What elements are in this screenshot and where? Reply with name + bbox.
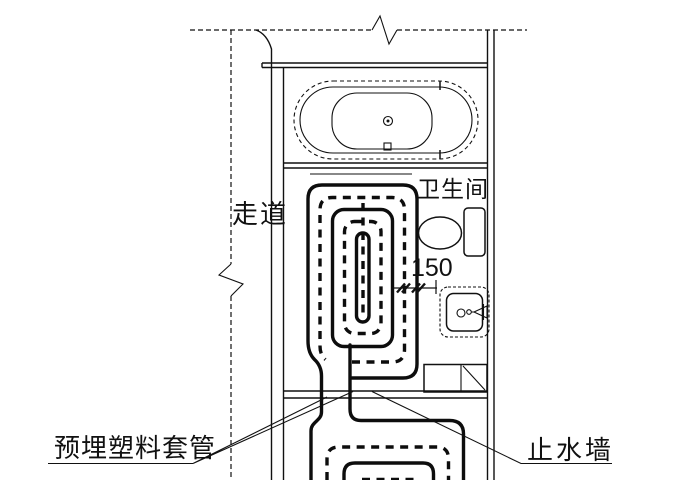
- sleeve-label: 预埋塑料套管: [54, 433, 216, 463]
- top-cut-line: [190, 16, 527, 44]
- dimension-150: 150: [392, 254, 453, 294]
- toilet: [419, 208, 486, 256]
- lower-room-coil: [327, 447, 449, 480]
- toilet-bowl: [419, 217, 462, 249]
- dimension-150-text: 150: [411, 254, 453, 282]
- walls: [256, 30, 494, 480]
- bathtub-basin: [332, 93, 432, 149]
- corridor-line: [219, 30, 243, 480]
- bathroom-label: 卫生间: [417, 176, 489, 202]
- cabinet-outline: [424, 365, 487, 393]
- faucet-handle: [467, 310, 472, 315]
- bathroom-left-wall: [272, 63, 284, 480]
- cabinet: [424, 365, 487, 393]
- bathtub: [294, 81, 478, 159]
- floor-heating-plan: 卫生间 150 走道: [0, 0, 700, 480]
- sleeve-callout: 预埋塑料套管: [48, 392, 353, 464]
- tub-alcove-wall: [284, 163, 488, 168]
- toilet-tank: [464, 208, 485, 256]
- lower-coil-solid-ring: [344, 463, 434, 480]
- bathroom-right-wall: [488, 30, 495, 480]
- water-stop-wall-callout: 止水墙: [372, 392, 614, 466]
- faucet-icon: [471, 304, 487, 320]
- bathtub-drain-dot: [387, 120, 390, 123]
- water-stop-wall-label: 止水墙: [527, 435, 614, 465]
- washbasin-drain: [457, 309, 465, 317]
- corridor-label: 走道: [232, 199, 288, 229]
- break-mark-top: [372, 16, 397, 44]
- break-mark-corridor: [219, 264, 243, 296]
- cabinet-divider: [461, 365, 485, 393]
- sleeve-leader-lines: [193, 392, 353, 464]
- bathroom-top-wall: [262, 63, 488, 68]
- washbasin: [440, 287, 489, 337]
- floor-heating-coil: [308, 185, 464, 480]
- wall-curve-corner: [256, 30, 272, 63]
- drawing-canvas: 卫生间 150 走道: [0, 0, 700, 480]
